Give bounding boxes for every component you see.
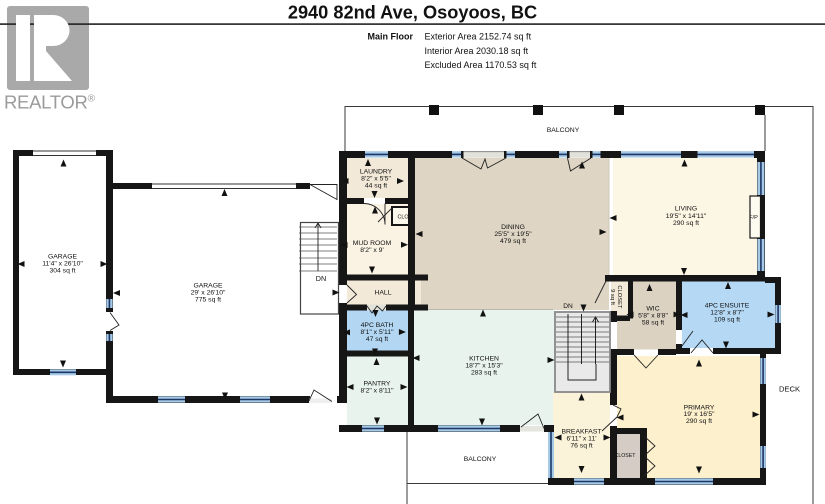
svg-text:8'2" x 8'11": 8'2" x 8'11" [361,388,395,395]
svg-text:109 sq ft: 109 sq ft [714,317,740,324]
svg-text:REALTOR®: REALTOR® [4,92,96,113]
svg-text:47 sq ft: 47 sq ft [366,336,388,343]
svg-text:4PC ENSUITE: 4PC ENSUITE [705,303,750,310]
svg-text:GARAGE: GARAGE [193,283,223,290]
svg-text:Excluded Area 1170.53 sq ft: Excluded Area 1170.53 sq ft [425,60,537,70]
svg-text:DN: DN [316,274,326,283]
svg-text:CLOSET: CLOSET [616,285,622,309]
svg-text:LAUNDRY: LAUNDRY [360,169,393,176]
svg-text:DINING: DINING [501,224,525,231]
svg-text:CLOSET: CLOSET [615,453,637,459]
svg-text:283 sq ft: 283 sq ft [471,370,497,377]
svg-text:Main Floor: Main Floor [368,32,414,42]
svg-text:76 sq ft: 76 sq ft [570,443,592,450]
svg-text:PANTRY: PANTRY [364,381,391,388]
svg-text:290 sq ft: 290 sq ft [673,220,699,227]
svg-text:29' x 26'10": 29' x 26'10" [191,290,226,297]
svg-text:9 sq ft: 9 sq ft [609,289,615,305]
svg-text:304 sq ft: 304 sq ft [49,268,75,275]
svg-text:6'11" x 11': 6'11" x 11' [566,436,596,443]
svg-text:BREAKFAST: BREAKFAST [561,429,601,436]
svg-text:HALL: HALL [374,290,391,297]
svg-text:2940 82nd Ave, Osoyoos, BC: 2940 82nd Ave, Osoyoos, BC [288,3,537,23]
svg-text:8'1" x 5'11": 8'1" x 5'11" [361,329,395,336]
svg-text:8'2" x 5'5": 8'2" x 5'5" [361,176,391,183]
svg-text:CLO: CLO [397,215,408,221]
svg-text:4PC BATH: 4PC BATH [361,322,394,329]
svg-text:DECK: DECK [779,385,800,394]
svg-text:19'5" x 14'11": 19'5" x 14'11" [666,213,707,220]
svg-text:775 sq ft: 775 sq ft [195,297,221,304]
svg-text:LIVING: LIVING [675,206,697,213]
svg-text:GARAGE: GARAGE [48,254,78,261]
svg-text:F/P: F/P [749,215,758,221]
svg-text:DN: DN [563,303,573,310]
svg-text:BALCONY: BALCONY [464,456,497,463]
svg-text:12'8" x 8'7": 12'8" x 8'7" [710,310,744,317]
svg-text:8'2" x 9': 8'2" x 9' [360,247,384,254]
svg-text:WIC: WIC [646,306,659,313]
svg-text:Exterior Area 2152.74 sq ft: Exterior Area 2152.74 sq ft [425,32,532,42]
svg-text:44 sq ft: 44 sq ft [365,183,387,190]
svg-text:479 sq ft: 479 sq ft [500,238,526,245]
svg-text:5'8" x 8'8": 5'8" x 8'8" [638,313,668,320]
svg-text:11'4" x 26'10": 11'4" x 26'10" [42,261,83,268]
svg-text:MUD ROOM: MUD ROOM [353,240,392,247]
svg-text:58 sq ft: 58 sq ft [642,320,664,327]
svg-text:290 sq ft: 290 sq ft [686,418,712,425]
svg-text:Interior Area 2030.18 sq ft: Interior Area 2030.18 sq ft [425,46,529,56]
svg-text:KITCHEN: KITCHEN [469,356,499,363]
svg-text:18'7" x 15'3": 18'7" x 15'3" [465,363,503,370]
svg-text:BALCONY: BALCONY [547,127,580,134]
svg-text:25'5" x 19'5": 25'5" x 19'5" [494,231,532,238]
